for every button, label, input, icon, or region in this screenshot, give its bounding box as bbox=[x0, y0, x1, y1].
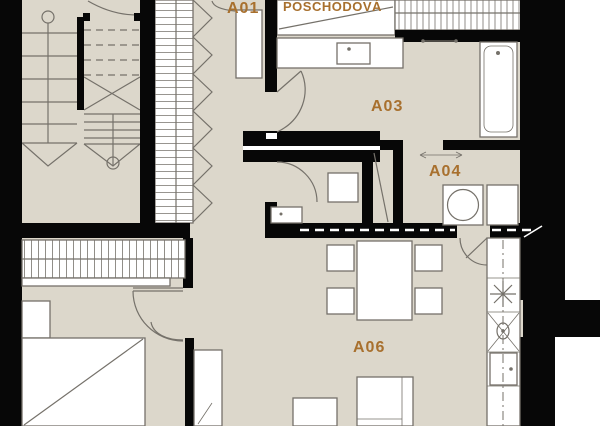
chair-icon bbox=[415, 288, 442, 314]
door-leaf bbox=[236, 10, 262, 78]
room-label-a06: A06 bbox=[353, 339, 385, 356]
chair-icon bbox=[327, 288, 354, 314]
sofa-icon bbox=[357, 377, 413, 426]
bed-icon bbox=[22, 338, 145, 426]
chair-icon bbox=[327, 245, 354, 271]
utility-appliances bbox=[443, 185, 518, 225]
nightstand-icon bbox=[22, 301, 50, 338]
dryer-icon bbox=[487, 185, 518, 225]
chair-icon bbox=[415, 245, 442, 271]
dining-table-icon bbox=[357, 241, 412, 320]
washbasin-icon bbox=[337, 43, 370, 64]
bedroom-wardrobe bbox=[22, 240, 185, 286]
washing-machine-icon bbox=[443, 185, 483, 225]
bathtub-icon bbox=[480, 42, 517, 137]
upper-stair-band bbox=[395, 0, 523, 30]
room-label-a03: A03 bbox=[371, 98, 403, 115]
side-table bbox=[293, 398, 337, 426]
floor-plan: A01 POSCHODOVÁ A03 A04 A06 bbox=[0, 0, 600, 426]
toilet-icon bbox=[271, 207, 302, 223]
landing-label: POSCHODOVÁ bbox=[283, 0, 382, 14]
plan-drawing: A01 POSCHODOVÁ A03 A04 A06 bbox=[0, 0, 600, 426]
room-label-a01: A01 bbox=[227, 0, 259, 17]
room-label-a04: A04 bbox=[429, 163, 461, 180]
tall-cabinet-icon bbox=[194, 350, 222, 426]
wc-cabinet bbox=[328, 173, 358, 202]
